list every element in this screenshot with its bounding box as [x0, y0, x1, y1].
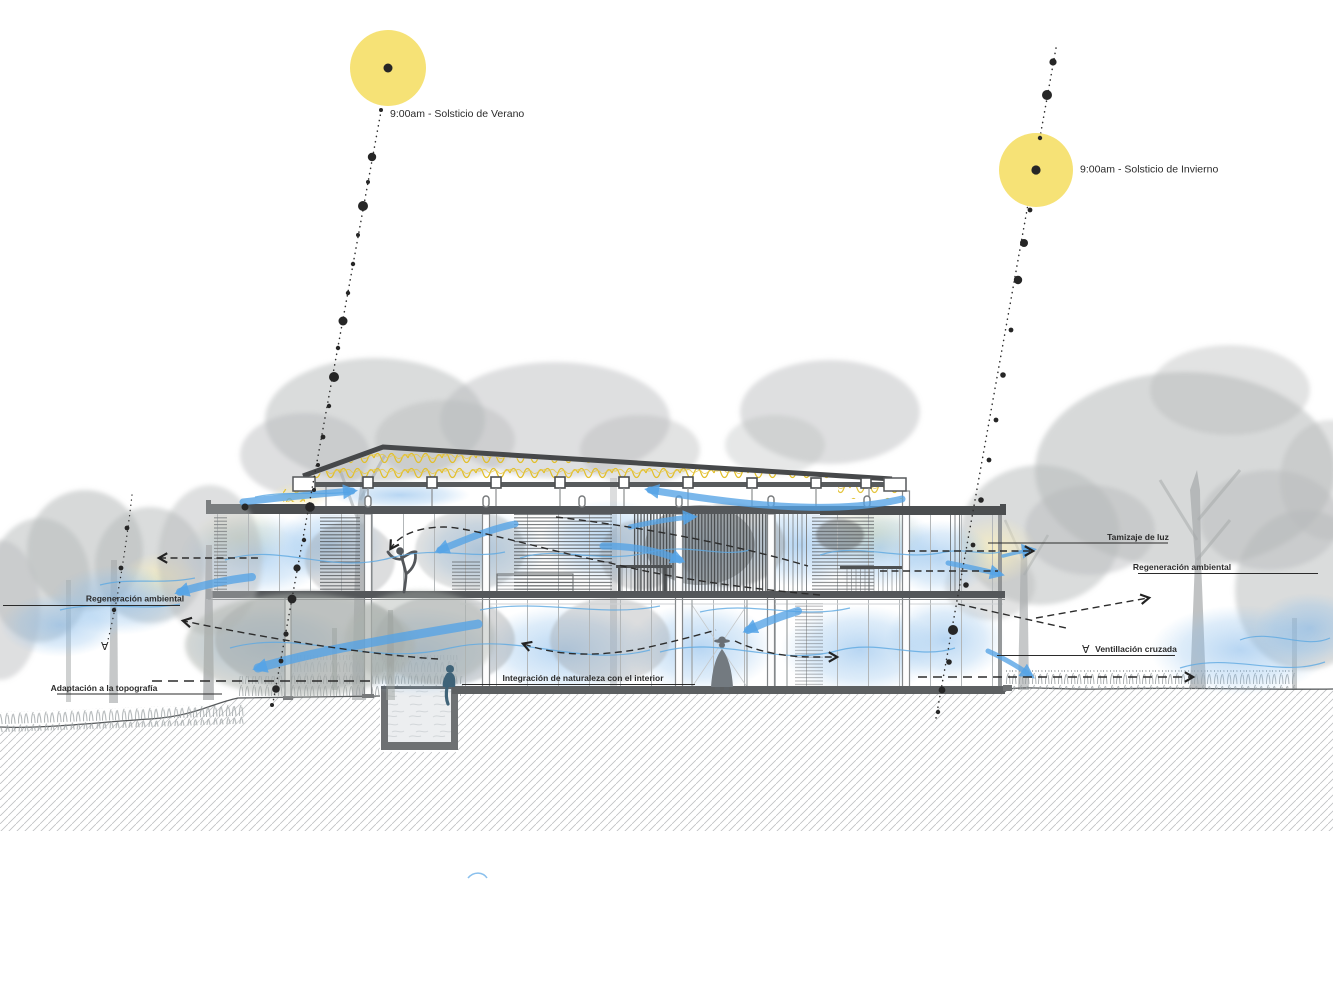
flow-marker-icon: ∀	[1082, 644, 1090, 656]
label-regeneracion-ambiental-right: Regeneración ambiental	[1133, 562, 1231, 572]
section-canvas: 9:00am - Solsticio de Verano 9:00am - So…	[0, 0, 1333, 1000]
label-ventilacion-cruzada: Ventillación cruzada	[1095, 644, 1177, 654]
louver-screen	[320, 515, 360, 592]
label-regeneracion-ambiental-left: Regeneración ambiental	[86, 594, 184, 604]
flow-marker-icon: ∀	[101, 641, 109, 653]
label-integracion-naturaleza: Integración de naturaleza con el interio…	[502, 673, 664, 683]
gutter-right	[884, 478, 906, 491]
label-summer-solstice: 9:00am - Solsticio de Verano	[390, 108, 524, 120]
label-adaptacion-topografia: Adaptación a la topografía	[51, 683, 158, 693]
architectural-section-diagram: 9:00am - Solsticio de Verano 9:00am - So…	[0, 0, 1333, 1000]
label-winter-solstice: 9:00am - Solsticio de Invierno	[1080, 164, 1218, 176]
louver-screen	[947, 515, 962, 592]
label-tamizaje-de-luz: Tamizaje de luz	[1107, 532, 1169, 542]
louver-screen	[452, 560, 480, 590]
louver-screen	[772, 512, 810, 592]
louver-door	[795, 603, 823, 686]
gutter-left	[293, 477, 315, 491]
